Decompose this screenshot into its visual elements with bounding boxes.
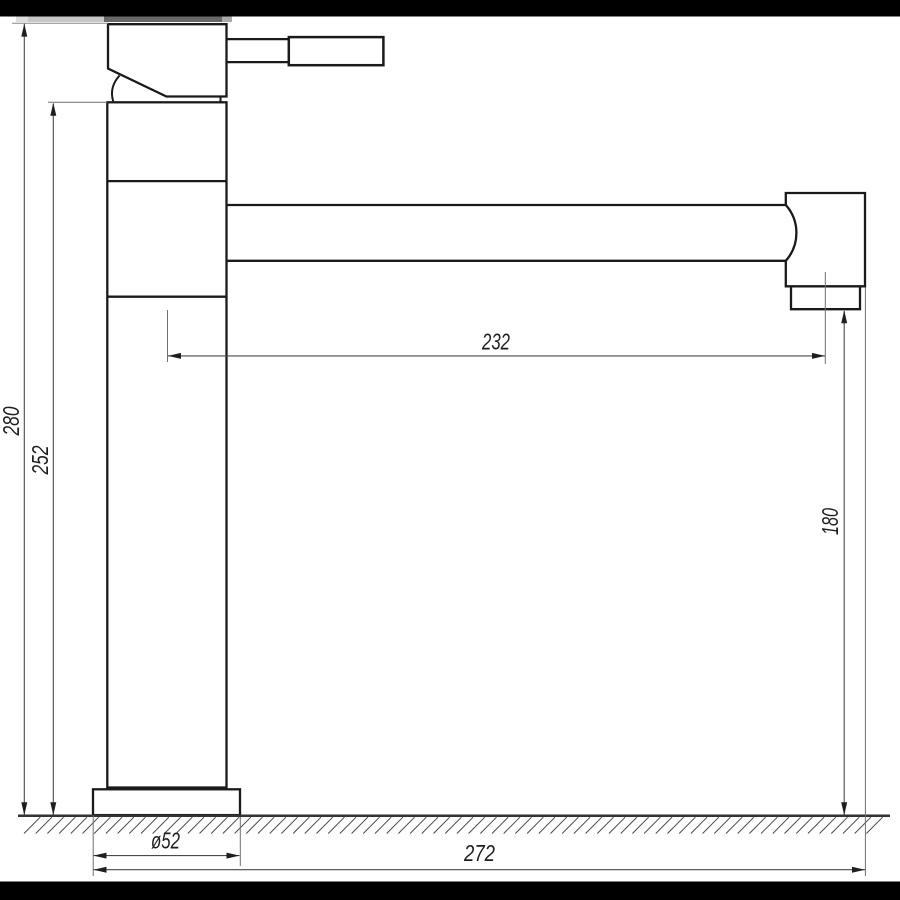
svg-text:232: 232 bbox=[481, 329, 510, 355]
svg-text:ø52: ø52 bbox=[151, 828, 180, 854]
svg-text:252: 252 bbox=[27, 445, 53, 475]
svg-text:272: 272 bbox=[463, 840, 495, 866]
svg-text:280: 280 bbox=[0, 406, 24, 436]
svg-text:180: 180 bbox=[817, 508, 843, 535]
